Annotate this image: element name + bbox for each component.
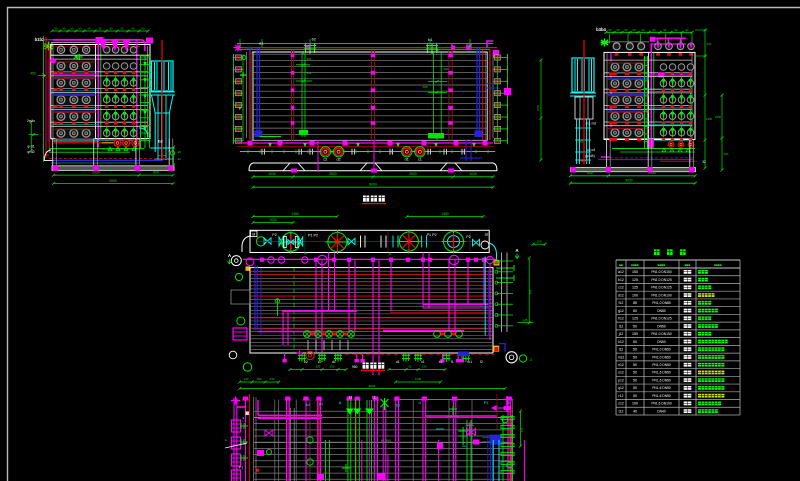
svg-text:m12: m12: [618, 355, 625, 359]
svg-text:φ d2: φ d2: [27, 150, 34, 154]
svg-text:PN1.0 DN50: PN1.0 DN50: [652, 348, 671, 352]
svg-text:3030: 3030: [625, 179, 633, 183]
svg-text:▪▪▪▪: ▪▪▪▪: [462, 444, 466, 448]
svg-text:k12: k12: [618, 340, 624, 344]
svg-text:■■■: ■■■: [685, 263, 691, 267]
svg-text:p12: p12: [618, 378, 624, 382]
svg-text:800: 800: [153, 170, 159, 174]
svg-text:600: 600: [587, 171, 593, 175]
svg-text:o12: o12: [618, 371, 624, 375]
svg-text:φ d1: φ d1: [27, 145, 34, 149]
svg-text:DN80: DN80: [657, 309, 666, 313]
svg-text:c1: c1: [421, 360, 425, 364]
svg-text:PN1.0 DN100: PN1.0 DN100: [651, 293, 672, 297]
svg-text:2350: 2350: [536, 104, 540, 111]
svg-text:175: 175: [520, 427, 524, 432]
svg-text:b3: b3: [396, 404, 400, 408]
svg-text:50: 50: [633, 386, 637, 390]
svg-text:φ8: φ8: [177, 150, 181, 154]
svg-text:300: 300: [724, 152, 729, 156]
svg-text:y1: y1: [388, 252, 392, 256]
svg-text:500: 500: [307, 57, 312, 61]
svg-text:50: 50: [633, 363, 637, 367]
svg-text:m1: m1: [468, 360, 473, 364]
svg-text:A08: A08: [423, 85, 428, 89]
svg-text:d12: d12: [618, 293, 624, 297]
svg-text:P1 P2: P1 P2: [308, 234, 318, 238]
svg-text:2m1n: 2m1n: [27, 119, 35, 123]
svg-text:180: 180: [257, 377, 262, 381]
svg-text:φ45: φ45: [522, 318, 527, 322]
svg-text:2430: 2430: [648, 171, 656, 175]
svg-text:1030: 1030: [269, 218, 276, 222]
svg-text:d1: d1: [405, 158, 409, 162]
svg-text:520: 520: [316, 364, 321, 368]
svg-text:PN1.6 DN50: PN1.6 DN50: [652, 386, 671, 390]
svg-text:950: 950: [352, 365, 358, 369]
svg-text:PN16: PN16: [436, 427, 444, 431]
svg-text:1030: 1030: [469, 172, 477, 176]
svg-text:P2: P2: [466, 235, 470, 239]
svg-text:40: 40: [633, 409, 637, 413]
svg-text:12: 12: [349, 396, 353, 400]
svg-text:500: 500: [444, 67, 449, 71]
svg-text:50: 50: [633, 371, 637, 375]
svg-text:s12: s12: [618, 402, 624, 406]
svg-text:b4: b4: [306, 403, 310, 407]
svg-text:3500: 3500: [329, 172, 337, 176]
svg-text:b2: b2: [304, 360, 308, 364]
svg-text:125: 125: [632, 317, 638, 321]
svg-text:■■■■: ■■■■: [714, 263, 722, 267]
svg-text:330: 330: [422, 364, 427, 368]
svg-text:50: 50: [633, 355, 637, 359]
svg-text:PN1.6 DN50: PN1.6 DN50: [652, 394, 671, 398]
svg-text:M: M: [252, 233, 255, 237]
svg-text:g12: g12: [618, 309, 624, 313]
svg-text:b1: b1: [428, 37, 433, 42]
svg-text:100: 100: [632, 293, 638, 297]
svg-text:r12: r12: [619, 394, 624, 398]
svg-text:140: 140: [536, 240, 541, 244]
svg-text:85: 85: [633, 301, 637, 305]
svg-text:n12: n12: [618, 363, 624, 367]
svg-text:b3b4: b3b4: [596, 27, 606, 32]
svg-text:DN50: DN50: [657, 340, 666, 344]
svg-text:(φ d4): (φ d4): [585, 154, 594, 158]
svg-text:d1: d1: [396, 360, 400, 364]
svg-text:d2: d2: [332, 360, 336, 364]
svg-text:PN1.6 DN100: PN1.6 DN100: [651, 402, 672, 406]
svg-text:i12: i12: [619, 324, 624, 328]
svg-text:c2: c2: [318, 360, 322, 364]
svg-text:f1: f1: [451, 360, 454, 364]
svg-text:80: 80: [633, 309, 637, 313]
svg-text:150: 150: [632, 270, 638, 274]
svg-text:845: 845: [529, 289, 533, 294]
svg-text:2030: 2030: [92, 170, 100, 174]
svg-text:500: 500: [307, 71, 312, 75]
svg-text:■■: ■■: [619, 263, 623, 267]
svg-text:d2: d2: [336, 158, 340, 162]
svg-text:610: 610: [270, 377, 275, 381]
svg-text:t12: t12: [619, 409, 624, 413]
svg-text:m1 m2: m1 m2: [586, 122, 597, 126]
svg-text:2: 2: [530, 358, 532, 362]
svg-text:j12: j12: [618, 332, 624, 336]
svg-text:DN40: DN40: [657, 409, 666, 413]
svg-text:32: 32: [702, 160, 706, 164]
svg-text:PN1.0 DN125: PN1.0 DN125: [651, 278, 672, 282]
svg-text:b1: b1: [439, 360, 443, 364]
svg-text:W: W: [304, 252, 307, 256]
svg-text:l12: l12: [619, 348, 624, 352]
svg-text:f2: f2: [508, 401, 511, 405]
svg-text:125: 125: [632, 278, 638, 282]
svg-text:f2: f2: [480, 360, 483, 364]
svg-text:3000: 3000: [409, 172, 417, 176]
svg-text:c2: c2: [323, 158, 327, 162]
svg-text:1450: 1450: [441, 212, 449, 216]
svg-text:P1 P2: P1 P2: [427, 233, 437, 237]
svg-text:q12: q12: [618, 386, 624, 390]
svg-text:■■■■: ■■■■: [631, 263, 639, 267]
svg-text:DN50: DN50: [657, 324, 666, 328]
svg-text:a2: a2: [468, 44, 472, 48]
svg-text:b12: b12: [618, 278, 624, 282]
svg-text:50: 50: [633, 324, 637, 328]
svg-text:■■■■: ■■■■: [658, 263, 666, 267]
svg-text:50: 50: [633, 340, 637, 344]
svg-text:PN1.0 DN150: PN1.0 DN150: [651, 332, 672, 336]
svg-text:1030: 1030: [268, 172, 276, 176]
svg-text:450: 450: [30, 72, 36, 76]
svg-text:50: 50: [633, 348, 637, 352]
svg-text:P3: P3: [484, 401, 488, 405]
svg-text:2350: 2350: [715, 115, 722, 119]
svg-text:b2: b2: [158, 140, 162, 144]
svg-text:c12: c12: [618, 286, 624, 290]
svg-text:32: 32: [177, 157, 181, 161]
svg-text:12: 12: [372, 396, 376, 400]
svg-text:125: 125: [632, 286, 638, 290]
svg-text:240: 240: [244, 377, 249, 381]
svg-text:b2: b2: [312, 37, 317, 42]
svg-text:PN1.0 DN125: PN1.0 DN125: [651, 286, 672, 290]
svg-text:8060: 8060: [369, 182, 377, 186]
svg-text:l4: l4: [339, 401, 342, 405]
svg-text:62: 62: [409, 364, 412, 368]
svg-text:h12: h12: [618, 317, 624, 321]
svg-text:f12: f12: [619, 301, 624, 305]
svg-text:1900: 1900: [706, 117, 713, 121]
svg-text:100: 100: [632, 402, 638, 406]
svg-text:P❘: P❘: [239, 466, 244, 470]
svg-text:b3: b3: [579, 140, 583, 144]
svg-text:50: 50: [633, 394, 637, 398]
svg-text:PN1.0 DN50: PN1.0 DN50: [652, 355, 671, 359]
svg-text:P2: P2: [272, 233, 276, 237]
svg-text:a12: a12: [618, 270, 624, 274]
svg-text:PN1.0 DN85: PN1.0 DN85: [652, 301, 671, 305]
svg-text:500: 500: [707, 42, 712, 46]
svg-text:50: 50: [633, 378, 637, 382]
svg-text:a2: a2: [485, 233, 489, 237]
svg-text:8060: 8060: [369, 384, 376, 388]
svg-text:PN1.0 DN50: PN1.0 DN50: [652, 363, 671, 367]
svg-text:▪▪: ▪▪: [225, 438, 227, 442]
svg-text:1240: 1240: [415, 377, 422, 381]
svg-text:PN1.0 DN125: PN1.0 DN125: [651, 317, 672, 321]
svg-text:PN1.6 DN50: PN1.6 DN50: [652, 378, 671, 382]
svg-text:2830: 2830: [109, 179, 117, 183]
svg-text:t1: t1: [419, 401, 422, 405]
svg-text:c3 c4: c3 c4: [587, 148, 595, 152]
svg-text:PN1.0 DN150: PN1.0 DN150: [651, 270, 672, 274]
svg-text:◄: ◄: [242, 416, 245, 420]
svg-text:c1: c1: [418, 158, 422, 162]
svg-text:330: 330: [330, 364, 335, 368]
svg-text:PN1.6 DN50: PN1.6 DN50: [652, 371, 671, 375]
svg-text:1450: 1450: [291, 212, 299, 216]
svg-text:150: 150: [632, 332, 638, 336]
svg-text:P4: P4: [319, 403, 323, 407]
